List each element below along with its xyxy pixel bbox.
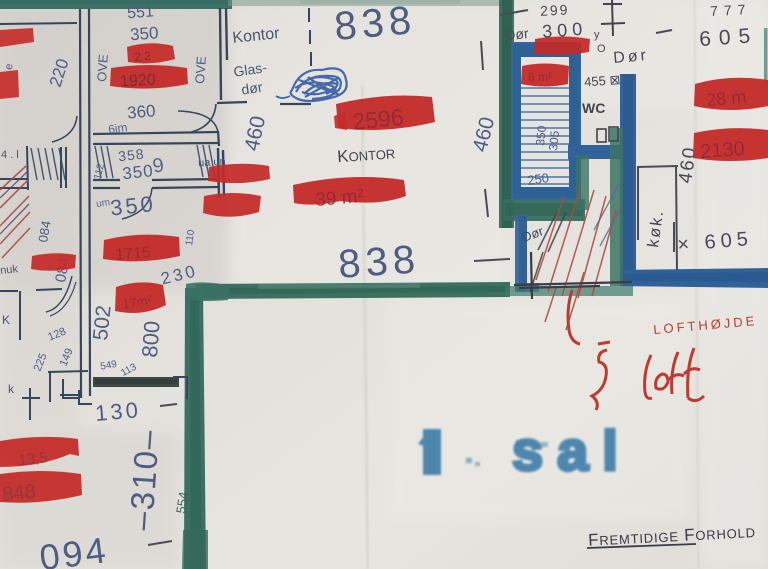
svg-text:130: 130: [94, 397, 142, 426]
svg-text:um: um: [96, 197, 111, 210]
svg-text:350: 350: [121, 161, 154, 183]
svg-text:e: e: [3, 63, 15, 70]
svg-text:sal: sal: [512, 419, 632, 482]
svg-text:250: 250: [526, 170, 550, 188]
svg-text:2.2: 2.2: [134, 49, 152, 64]
svg-text:110: 110: [184, 229, 197, 247]
svg-text:–310–: –310–: [122, 427, 166, 531]
svg-text:350: 350: [109, 191, 157, 221]
svg-text:777: 777: [710, 1, 752, 19]
svg-text:WC: WC: [582, 100, 605, 116]
svg-text:1920: 1920: [120, 72, 157, 91]
svg-text:39 m²: 39 m²: [314, 186, 364, 211]
svg-text:4 . l: 4 . l: [1, 149, 19, 161]
svg-text:1715: 1715: [115, 244, 152, 263]
svg-text:2130: 2130: [700, 138, 746, 163]
svg-text:nuk: nuk: [0, 263, 19, 277]
svg-text:455 ⊠: 455 ⊠: [584, 72, 621, 89]
svg-text:551: 551: [127, 3, 155, 22]
svg-text:800: 800: [137, 320, 165, 358]
svg-text:350: 350: [129, 23, 159, 44]
svg-text:OVE: OVE: [192, 55, 209, 84]
svg-text:28 m: 28 m: [705, 86, 747, 110]
svg-text:OVE: OVE: [94, 53, 111, 82]
svg-text:Dør: Dør: [504, 25, 529, 43]
svg-text:k: k: [8, 382, 15, 396]
svg-text:6im: 6im: [107, 120, 128, 137]
svg-text:K: K: [2, 313, 10, 327]
svg-text:848: 848: [1, 481, 36, 506]
svg-text:13,5: 13,5: [18, 449, 49, 469]
svg-text:O: O: [597, 43, 606, 55]
svg-text:299: 299: [540, 1, 570, 19]
svg-text:8 m²: 8 m²: [528, 70, 552, 84]
svg-text:502: 502: [89, 304, 116, 341]
svg-text:554: 554: [173, 491, 191, 515]
svg-text:838: 838: [337, 237, 422, 287]
svg-text:Dør: Dør: [613, 47, 650, 67]
svg-text:dør: dør: [240, 79, 263, 98]
svg-text:2596: 2596: [351, 104, 405, 135]
svg-text:838: 838: [333, 0, 418, 49]
svg-text:y: y: [594, 29, 600, 41]
svg-text:360: 360: [126, 101, 156, 122]
svg-text:305: 305: [546, 130, 562, 152]
svg-text:605: 605: [698, 24, 759, 51]
